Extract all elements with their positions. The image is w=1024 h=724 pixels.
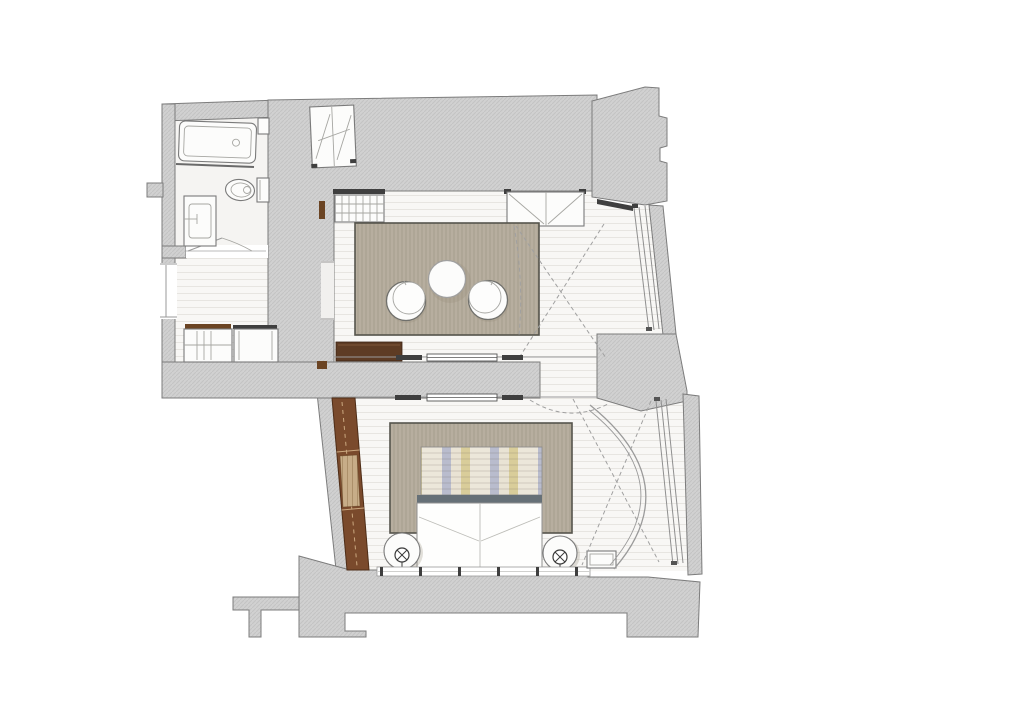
lounge-chair-right (469, 281, 510, 323)
entry-closets (184, 324, 278, 362)
double-bed (417, 447, 542, 571)
door-jamb-lower (317, 361, 327, 369)
entry-closet-grid (184, 329, 232, 362)
lounge-chair-left (387, 281, 428, 323)
right-mid-wall-band (597, 334, 687, 411)
door-jamb-upper (319, 201, 325, 219)
divider-wall-band (162, 362, 540, 398)
bottom-t-wall (233, 597, 299, 637)
vanity-sink (184, 196, 216, 246)
radiator-sill (333, 189, 385, 194)
headboard-band (417, 495, 542, 503)
toilet (224, 178, 269, 202)
bathtub (178, 121, 256, 164)
entry-door-opening (160, 263, 177, 319)
entry-closet-plain (234, 329, 278, 362)
window-sill-row (377, 567, 590, 576)
closet-track-dark (233, 325, 277, 329)
left-wall-stub (147, 183, 163, 197)
wardrobe-wood-inset (340, 455, 360, 507)
top-right-wall-mass (592, 87, 667, 205)
hatched-wardrobe-closet (309, 105, 357, 168)
media-console (336, 342, 402, 361)
duvet (417, 503, 542, 571)
window-bench (587, 551, 616, 568)
left-wall (162, 104, 175, 364)
striped-headboard (421, 447, 542, 495)
radiator-grid (335, 195, 384, 222)
storage-cabinet (504, 189, 586, 226)
bathroom-bottom-wall-stub (162, 246, 186, 258)
floor-plan-page (0, 0, 1024, 724)
passage-floor-planks (540, 362, 598, 397)
floor-plan-drawing (0, 0, 1024, 724)
wall-niche (258, 118, 269, 134)
entry-living-opening (321, 261, 334, 320)
